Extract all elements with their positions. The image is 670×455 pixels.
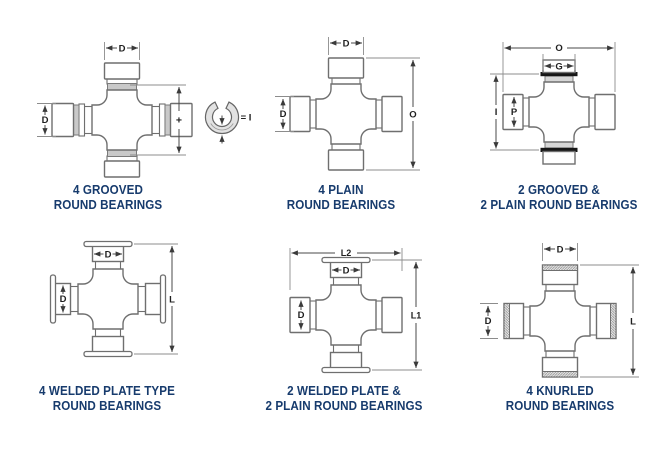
caption-line-1: 2 GROOVED & [457, 183, 662, 198]
cross-body [92, 90, 152, 150]
bearing-cap-left [290, 97, 317, 132]
caption-4-grooved: 4 GROOVED ROUND BEARINGS [6, 183, 211, 213]
caption-line-2: ROUND BEARINGS [239, 198, 444, 213]
caption-4-welded-plate: 4 WELDED PLATE TYPE ROUND BEARINGS [5, 384, 210, 414]
bearing-cap-top [543, 265, 578, 292]
bearing-cap-left [504, 304, 531, 339]
caption-4-plain: 4 PLAIN ROUND BEARINGS [239, 183, 444, 213]
diagram-2-welded-2-plain: L2 D D L1 [290, 248, 422, 373]
caption-line-2: ROUND BEARINGS [458, 399, 663, 414]
bearing-cap-bottom [329, 143, 364, 170]
cross-body [316, 285, 376, 345]
dim-label-left: D [60, 294, 67, 305]
caption-line-2: ROUND BEARINGS [6, 198, 211, 213]
dim-label-right: L1 [411, 310, 422, 320]
dim-label-right: L [630, 317, 636, 328]
dim-label-left: D [485, 316, 492, 327]
dim-label-top: D [105, 249, 112, 260]
bearing-cap-right [375, 97, 402, 132]
caption-4-knurled: 4 KNURLED ROUND BEARINGS [458, 384, 663, 414]
bearing-cap-top [329, 58, 364, 85]
bearing-cap-bottom [105, 149, 140, 177]
dim-label-top: D [343, 265, 350, 276]
caption-line-2: ROUND BEARINGS [5, 399, 210, 414]
dim-label-left: D [42, 115, 49, 126]
bearing-cap-right [138, 275, 166, 323]
diagram-4-welded-plate: D D L [51, 242, 179, 357]
diagram-4-knurled: D D L [480, 243, 639, 377]
bearing-cap-bottom [84, 329, 132, 357]
diagram-4-plain: D D O [275, 37, 420, 170]
dim-label-ring-equals: = I [241, 113, 252, 124]
caption-line-1: 4 PLAIN [239, 183, 444, 198]
dim-label-plus: + [176, 115, 182, 127]
diagrams-canvas: D D + = I [0, 0, 670, 450]
caption-line-1: 2 WELDED PLATE & [242, 384, 447, 399]
bearing-cap-right [152, 104, 193, 137]
dim-label-outer-height: I [495, 107, 498, 118]
snap-ring-icon [206, 102, 239, 143]
dim-label-cap-bore: P [511, 107, 518, 118]
bearing-cap-bottom [543, 351, 578, 378]
cross-body [529, 82, 589, 142]
bearing-cap-bottom [322, 345, 370, 373]
bearing-cap-right [588, 95, 615, 130]
caption-line-1: 4 WELDED PLATE TYPE [5, 384, 210, 399]
caption-line-1: 4 GROOVED [6, 183, 211, 198]
dim-label-right: L [169, 295, 175, 306]
dim-label-left: D [280, 109, 287, 120]
caption-line-1: 4 KNURLED [458, 384, 663, 399]
bearing-cap-left [52, 104, 93, 137]
caption-line-2: 2 PLAIN ROUND BEARINGS [242, 399, 447, 414]
bearing-cap-right [375, 298, 402, 333]
dim-label-outer-width: O [555, 43, 562, 54]
dim-label-right: O [409, 110, 416, 121]
bearing-cap-bottom [541, 142, 578, 165]
diagram-4-grooved: D D + = I [37, 42, 251, 177]
cross-body [78, 269, 138, 329]
caption-2-welded-2-plain: 2 WELDED PLATE & 2 PLAIN ROUND BEARINGS [242, 384, 447, 414]
cross-body [530, 291, 590, 351]
bearing-cap-top [105, 63, 140, 91]
caption-line-2: 2 PLAIN ROUND BEARINGS [457, 198, 662, 213]
dim-label-top: D [343, 39, 350, 50]
cross-body [316, 84, 376, 144]
bearing-cap-right [590, 304, 617, 339]
dim-label-cap-width: G [555, 61, 562, 72]
bearing-types-figure: D D + = I [0, 0, 670, 450]
diagram-2-grooved-2-plain: O G I P [490, 42, 615, 164]
dim-label-left: D [298, 310, 305, 321]
dim-label-top: D [119, 44, 126, 55]
caption-2-grooved-2-plain: 2 GROOVED & 2 PLAIN ROUND BEARINGS [457, 183, 662, 213]
dim-label-outer-width: L2 [341, 248, 352, 258]
dim-label-top: D [557, 245, 564, 256]
